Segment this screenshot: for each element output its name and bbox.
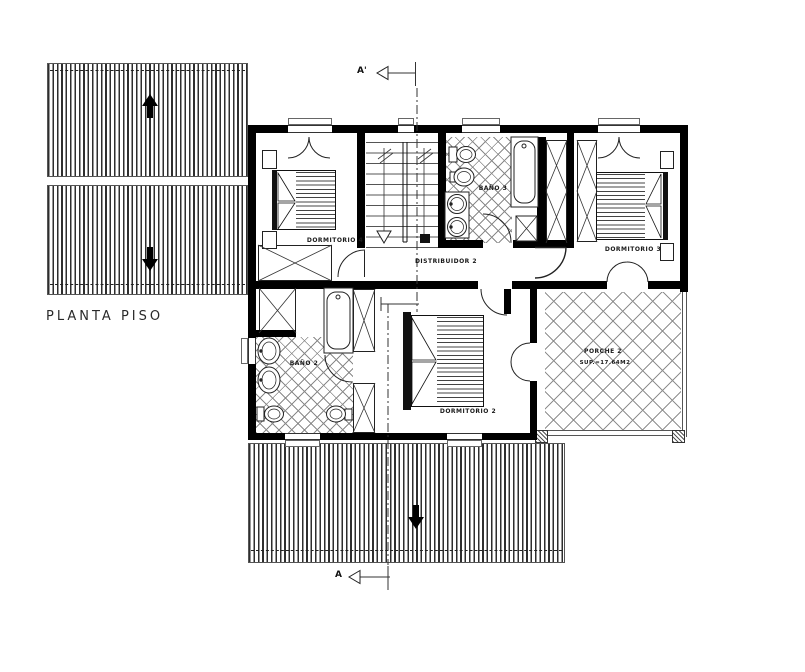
- bed-dormitorio2-blanket: [437, 317, 483, 405]
- window-sill: [285, 440, 320, 447]
- wall-bathtub-side: [537, 137, 546, 240]
- window-bano2: [248, 338, 256, 364]
- porch-area-label: SUP.=17.64M2: [580, 360, 631, 366]
- door-dormitorio3: [535, 247, 566, 278]
- room-label-distribuidor2: DISTRIBUIDOR 2: [415, 258, 477, 265]
- wall-hall-south: [252, 281, 478, 289]
- wall-exterior-top: [332, 125, 398, 133]
- bed-dormitorio4-headboard: [272, 170, 277, 230]
- double-door-dorm2-porch: [511, 343, 530, 381]
- wall-dorm2-porch: [530, 289, 537, 343]
- wall-exterior-top: [252, 125, 288, 133]
- wall-bano3-south: [438, 240, 483, 248]
- wall-exterior-left: [248, 125, 256, 338]
- wall-bano2-interior: [248, 330, 296, 337]
- window-dormitorio4: [288, 125, 332, 133]
- roof-eave-dashed-line: [50, 284, 245, 285]
- window-stairs: [398, 125, 414, 133]
- window-sill: [398, 118, 414, 125]
- window-sill: [288, 118, 332, 125]
- wall-exterior-bottom: [320, 433, 447, 440]
- section-marker-bottom-label: A: [335, 570, 342, 580]
- bed-dormitorio4-blanket: [296, 172, 335, 228]
- section-marker-top-label: A': [357, 66, 367, 76]
- porch-edge-bottom: [548, 430, 672, 436]
- wall-dorm2-porch: [530, 381, 537, 440]
- wall-exterior-bottom: [482, 433, 537, 440]
- wall-exterior-bottom: [252, 433, 285, 440]
- window-bano2-south: [285, 433, 320, 440]
- wall-bano3-south: [513, 240, 574, 248]
- nightstand: [262, 231, 277, 249]
- room-label-dormitorio2: DORMITORIO 2: [440, 408, 496, 415]
- room-label-bano3: BAÑO 3: [479, 185, 508, 192]
- porch-edge-right: [682, 292, 687, 437]
- window-dormitorio2-south: [447, 433, 482, 440]
- bed-dormitorio3-headboard: [663, 172, 668, 240]
- wall-dorm4-stairs: [357, 133, 365, 248]
- wall-exterior-right: [680, 125, 688, 292]
- bed-dormitorio2-headboard: [403, 312, 411, 410]
- window-sill: [598, 118, 640, 125]
- section-arrow-top: [377, 67, 388, 80]
- window-sill: [241, 338, 248, 364]
- room-label-porche2: PORCHE 2: [584, 348, 622, 355]
- floor-plan-canvas: PLANTA PISO DORMITORIO 4 BAÑO 3 DORMITOR…: [0, 0, 805, 672]
- wall-exterior-left: [248, 364, 256, 440]
- room-label-dormitorio3: DORMITORIO 3: [605, 246, 661, 253]
- door-leaf-dormitorio2: [504, 289, 511, 314]
- room-label-bano2: BAÑO 2: [290, 360, 319, 367]
- wall-stairs-bano3: [438, 133, 446, 247]
- window-bano3: [462, 125, 500, 133]
- bathtub-icon: [511, 137, 538, 207]
- window-dormitorio3: [598, 125, 640, 133]
- closet-bano3: [546, 140, 567, 243]
- window-casement-dorm4: [288, 137, 330, 158]
- roof-eave-dashed-line: [50, 70, 245, 71]
- double-door-dorm3-porch: [607, 262, 648, 282]
- closet-bano2-corner: [259, 288, 296, 333]
- nightstand: [660, 151, 674, 169]
- bathroom2-tile-floor: [256, 337, 353, 433]
- porch-pillar: [672, 430, 685, 443]
- wall-hall-south: [512, 281, 607, 289]
- roof-eave-dashed-line: [251, 550, 562, 551]
- roof-bottom: [248, 443, 565, 563]
- bed-dormitorio3-blanket: [597, 174, 645, 238]
- wardrobe-dormitorio3: [577, 140, 597, 242]
- wardrobe-dormitorio4: [258, 245, 332, 281]
- room-label-dormitorio4: DORMITORIO 4: [307, 237, 363, 244]
- closet-dormitorio2-lower: [353, 383, 375, 433]
- window-sill: [462, 118, 500, 125]
- closet-dormitorio2-upper: [353, 289, 375, 352]
- roof-ridge-line: [47, 176, 248, 186]
- wall-exterior-top: [500, 125, 598, 133]
- window-casement-dorm3: [598, 137, 640, 158]
- nightstand: [262, 150, 277, 169]
- drawing-title: PLANTA PISO: [46, 309, 163, 324]
- nightstand: [660, 243, 674, 261]
- section-arrow-bottom: [349, 571, 360, 584]
- wall-closet-dorm3: [567, 133, 574, 248]
- wall-porch-north: [648, 281, 688, 289]
- wall-exterior-top: [414, 125, 462, 133]
- shower-corner-unit: [516, 216, 537, 241]
- staircase-treads: [366, 142, 438, 248]
- window-sill: [447, 440, 482, 447]
- door-dormitorio4: [338, 250, 365, 277]
